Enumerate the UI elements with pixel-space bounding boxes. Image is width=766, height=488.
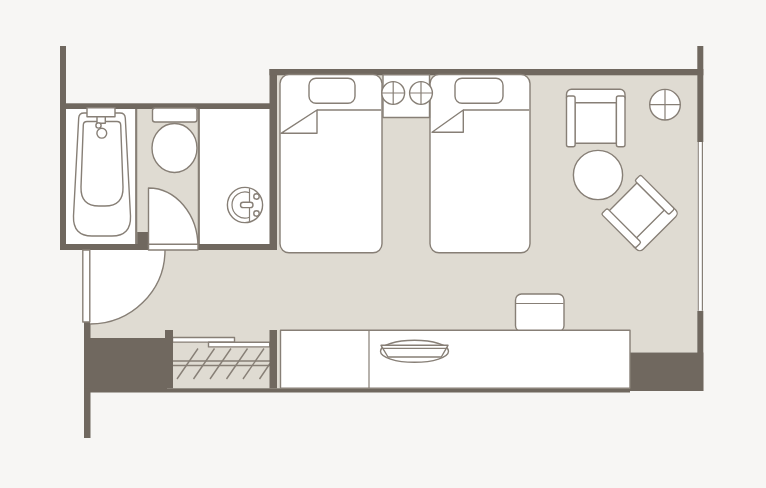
- bedside-lamp-right: [410, 82, 433, 105]
- bathtub-drain: [97, 128, 107, 138]
- wall-toilet-door-jamb: [137, 232, 148, 245]
- tray-dish: [381, 345, 448, 357]
- nightstand: [382, 75, 433, 118]
- toilet-tank: [153, 108, 198, 122]
- wall-entry-block: [90, 338, 167, 390]
- twin-bed-left: [280, 75, 382, 253]
- wall-left-outer: [60, 46, 66, 250]
- washbasin-tap-hole-bottom: [254, 211, 259, 216]
- bathtub: [73, 108, 130, 236]
- washbasin-tap-hole-top: [254, 194, 259, 199]
- closet-sliding-door-right: [209, 342, 270, 347]
- desk-counter: [281, 330, 631, 388]
- bed-pillow: [309, 78, 355, 103]
- floor-plan: [0, 0, 766, 488]
- amenity-tray: [381, 340, 449, 362]
- bathtub-faucet-deck: [87, 108, 115, 117]
- desk-chair-outline: [516, 294, 565, 332]
- window: [697, 142, 703, 311]
- armchair-seat: [575, 99, 617, 144]
- floor-plan-canvas: [0, 0, 766, 488]
- closet-post-left: [165, 330, 173, 388]
- toilet-bowl: [152, 124, 197, 173]
- armchair-arm-right: [616, 96, 625, 147]
- toilet-door-leaf: [149, 244, 199, 250]
- wall-right-upper: [697, 46, 703, 142]
- toilet: [152, 108, 197, 173]
- round-table: [573, 150, 622, 199]
- washbasin-overflow-slot: [241, 202, 254, 207]
- wall-bottom-right-block: [630, 353, 703, 392]
- bedside-lamp-left: [382, 82, 405, 105]
- bed-pillow: [455, 78, 503, 103]
- washbasin-room-floor: [200, 109, 270, 244]
- ceiling-light: [650, 89, 681, 120]
- wall-bathroom-right: [270, 69, 278, 250]
- closet-sliding-door-left: [173, 338, 235, 343]
- washbasin: [227, 187, 262, 222]
- bathtub-knob: [96, 123, 101, 128]
- desk-chair: [516, 294, 565, 332]
- closet-post-right: [270, 330, 278, 388]
- armchair-arm-left: [567, 96, 576, 147]
- desk-top: [281, 330, 631, 388]
- armchair: [567, 89, 626, 146]
- entrance-door-leaf: [83, 250, 90, 322]
- twin-bed-right: [430, 75, 530, 253]
